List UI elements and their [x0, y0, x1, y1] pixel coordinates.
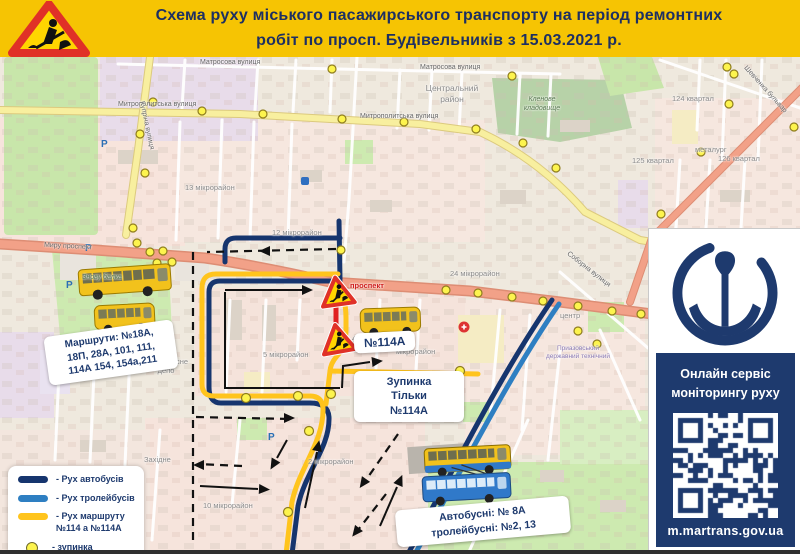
monitoring-sidebar: Онлайн сервіс моніторингу руху m.martran…: [648, 228, 800, 554]
transport-scheme-poster: P P P P: [0, 0, 800, 554]
street-label: Матросова вулиця: [200, 59, 260, 66]
stop-only-114a-callout: Зупинка Тільки №114А: [354, 371, 464, 422]
legend-label-line1: - Рух маршруту: [56, 511, 125, 521]
anchor-logo-icon: [667, 235, 783, 351]
legend-label-line2: №114 а №114А: [56, 523, 122, 533]
map-legend: - Рух автобусів - Рух тролейбусів - Рух …: [8, 466, 144, 554]
stadium-label: металург: [695, 145, 727, 154]
monitoring-line1: Онлайн сервіс: [671, 365, 779, 384]
page-title: Схема руху міського пасажирського трансп…: [78, 4, 723, 54]
legend-label: - Рух тролейбусів: [56, 493, 135, 505]
closed-prospect-label: проспект: [350, 281, 384, 290]
quarter-label: 125 квартал: [632, 156, 674, 165]
street-label: Матросова вулиця: [420, 64, 480, 71]
route-114a-callout: №114А: [354, 330, 416, 353]
qr-code: [673, 413, 778, 518]
area-label: Західне: [144, 455, 171, 464]
stop-line2: Тільки: [361, 389, 457, 403]
school-icon: [301, 177, 309, 185]
legend-item-bus: - Рух автобусів: [14, 474, 144, 486]
monitoring-url: m.martrans.gov.ua: [667, 524, 783, 538]
trolleybus-route-swatch: [18, 495, 48, 502]
area-label: Знову балка: [80, 274, 124, 283]
cemetery-label: Кленове кладовище: [512, 96, 572, 114]
monitoring-line2: моніторингу руху: [671, 384, 779, 403]
parking-icon: P: [101, 139, 108, 150]
bottom-border: [0, 550, 800, 554]
district-label: Центральний район: [424, 83, 480, 104]
monitoring-box: Онлайн сервіс моніторингу руху m.martran…: [656, 353, 795, 547]
title-line2: робіт по просп. Будівельників з 15.03.20…: [156, 29, 723, 54]
university-label: Приазовський державний технічний: [545, 345, 611, 361]
legend-label: - Рух автобусів: [56, 474, 124, 486]
district-label: 2 мікрорайон: [308, 457, 354, 466]
district-label: 10 мікрорайон: [203, 501, 253, 510]
quarter-label: 124 квартал: [672, 94, 714, 103]
monitoring-text: Онлайн сервіс моніторингу руху: [671, 365, 779, 403]
stop-line3: №114А: [361, 404, 457, 418]
quarter-label: 126 квартал: [718, 154, 760, 163]
district-label: 24 мікрорайон: [450, 269, 500, 278]
legend-label: - Рух маршруту №114 а №114А: [56, 511, 125, 534]
legend-item-marshrutka: - Рух маршруту №114 а №114А: [14, 511, 144, 534]
street-label: Митрополитська вулиця: [360, 113, 438, 120]
street-label: Митрополитська вулиця: [118, 101, 196, 108]
title-line1: Схема руху міського пасажирського трансп…: [156, 4, 723, 29]
bus-route-swatch: [18, 476, 48, 483]
marshrutka-route-swatch: [18, 513, 48, 520]
title-banner: Схема руху міського пасажирського трансп…: [0, 0, 800, 57]
legend-item-trolleybus: - Рух тролейбусів: [14, 493, 144, 505]
parking-icon: P: [66, 280, 73, 291]
district-label: 13 мікрорайон: [185, 183, 235, 192]
district-label: 12 мікрорайон: [272, 228, 322, 237]
stop-line1: Зупинка: [361, 375, 457, 389]
parking-icon: P: [268, 432, 275, 443]
district-label: центр: [560, 311, 580, 320]
roadwork-sign-icon: [8, 1, 90, 57]
district-label: 5 мікрорайон: [263, 350, 309, 359]
